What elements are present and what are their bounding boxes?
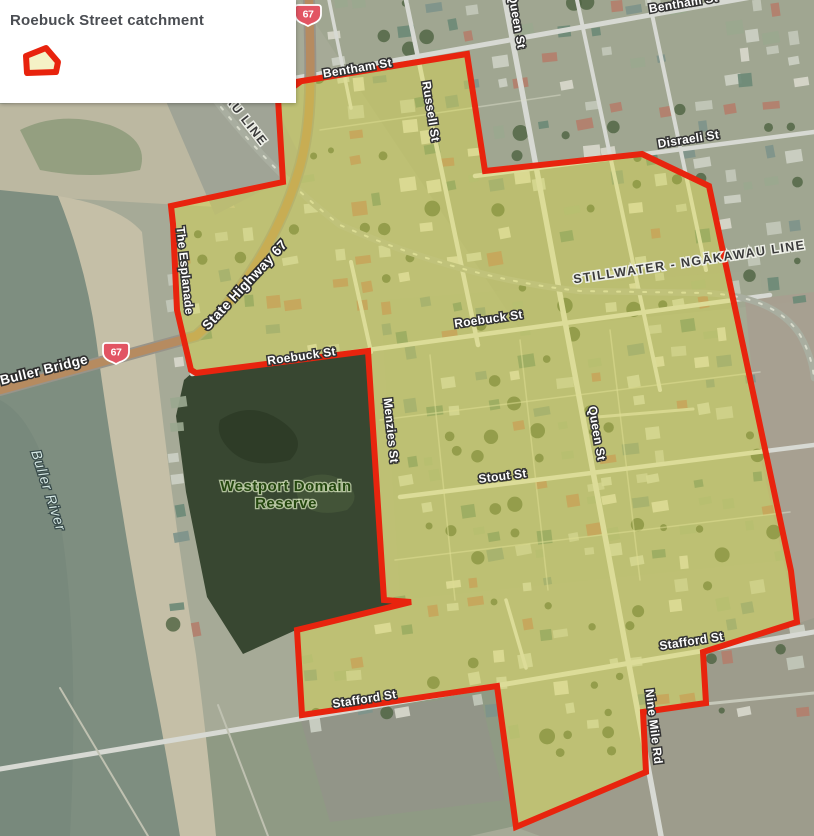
map-label-westport-domain-reserve: Reserve [255, 495, 317, 512]
svg-text:67: 67 [303, 9, 314, 21]
legend-polygon [26, 48, 58, 73]
map-label-westport-domain-reserve: Westport Domain [220, 478, 351, 495]
legend-panel: Roebuck Street catchment [0, 0, 296, 103]
svg-text:67: 67 [111, 347, 122, 359]
legend-title: Roebuck Street catchment [10, 12, 204, 29]
map-canvas[interactable]: Bentham StBentham StRussell StQueen StDi… [0, 0, 814, 836]
catchment-swatch-icon [20, 42, 66, 80]
map-viewport: Bentham StBentham StRussell StQueen StDi… [0, 0, 814, 836]
